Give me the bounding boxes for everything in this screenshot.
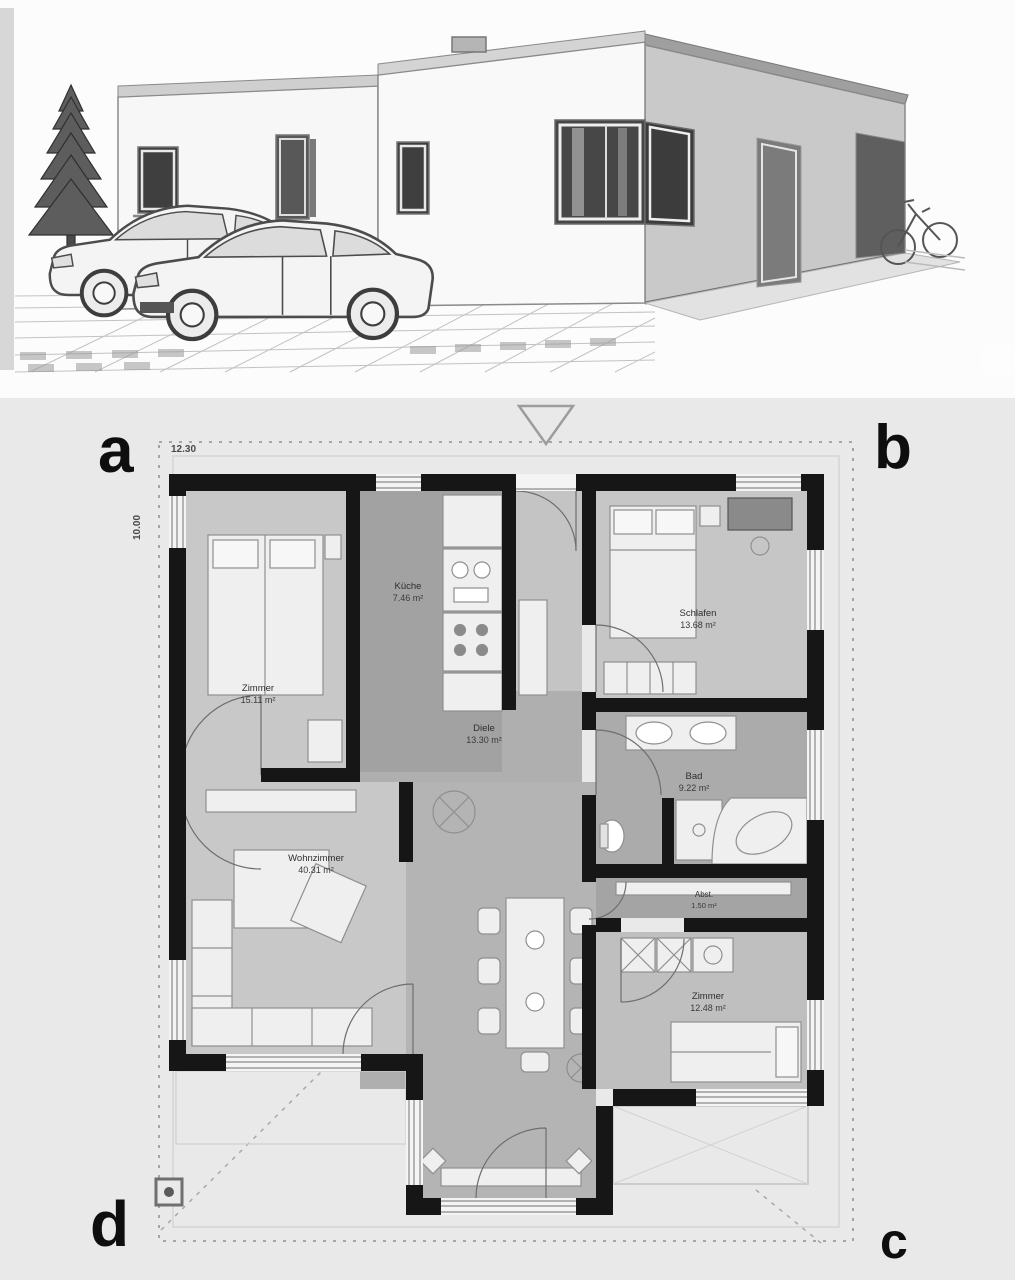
hall-wardrobe (519, 600, 547, 695)
sofa-bottom (192, 1008, 372, 1046)
driveway-dark-pavers (20, 338, 616, 372)
site-marker (156, 1179, 182, 1205)
side-porch-opening (856, 133, 905, 258)
room-label-abstell: Abst. (695, 890, 713, 899)
room-label-wohnzimmer: Wohnzimmer (288, 853, 344, 864)
floor-plan-section: 12.30 10.00 (0, 398, 1015, 1280)
license-plate (140, 302, 174, 313)
room-label-kueche: Küche (395, 581, 422, 592)
side-door (757, 138, 801, 287)
room-area-schlafen: 13.68 m² (680, 620, 716, 630)
entrance-triangle-marker (519, 406, 573, 444)
kitchen-counter (443, 495, 502, 711)
front-window-2 (397, 142, 429, 214)
exterior-rendering-canvas (0, 0, 1015, 398)
room-label-schlafen: Schlafen (680, 608, 717, 619)
room-label-zimmer2: Zimmer (692, 991, 724, 1002)
room-area-wohnzimmer: 40.31 m² (298, 865, 334, 875)
room-area-kueche: 7.46 m² (393, 593, 424, 603)
pine-tree (29, 85, 113, 251)
dresser (308, 720, 342, 762)
dimension-depth: 10.00 (132, 515, 143, 540)
room-area-zimmer2: 12.48 m² (690, 1003, 726, 1013)
room-area-bad: 9.22 m² (679, 783, 710, 793)
corner-label-c: c (880, 1213, 908, 1269)
corner-window (555, 120, 694, 226)
room-label-diele: Diele (473, 723, 495, 734)
room-area-zimmer1: 15.11 m² (241, 695, 276, 705)
dimension-width: 12.30 (171, 444, 196, 455)
page: 12.30 10.00 (0, 0, 1015, 1280)
room-label-bad: Bad (686, 771, 703, 782)
corner-label-a: a (98, 414, 134, 486)
corner-label-d: d (90, 1188, 129, 1260)
dining-table (506, 898, 564, 1048)
front-door (276, 135, 316, 219)
dining-floor (406, 782, 596, 1212)
sideboard (206, 790, 356, 812)
room-label-zimmer1: Zimmer (242, 683, 274, 694)
photo-left-band (0, 8, 14, 370)
roof-vent (452, 37, 486, 52)
photo-corner-patch (982, 342, 1015, 376)
room-area-diele: 13.30 m² (466, 735, 502, 745)
exterior-rendering (0, 0, 1015, 398)
room-area-abstell: 1.50 m² (691, 901, 717, 910)
floor-plan: 12.30 10.00 (76, 400, 938, 1278)
corner-label-b: b (874, 413, 912, 482)
